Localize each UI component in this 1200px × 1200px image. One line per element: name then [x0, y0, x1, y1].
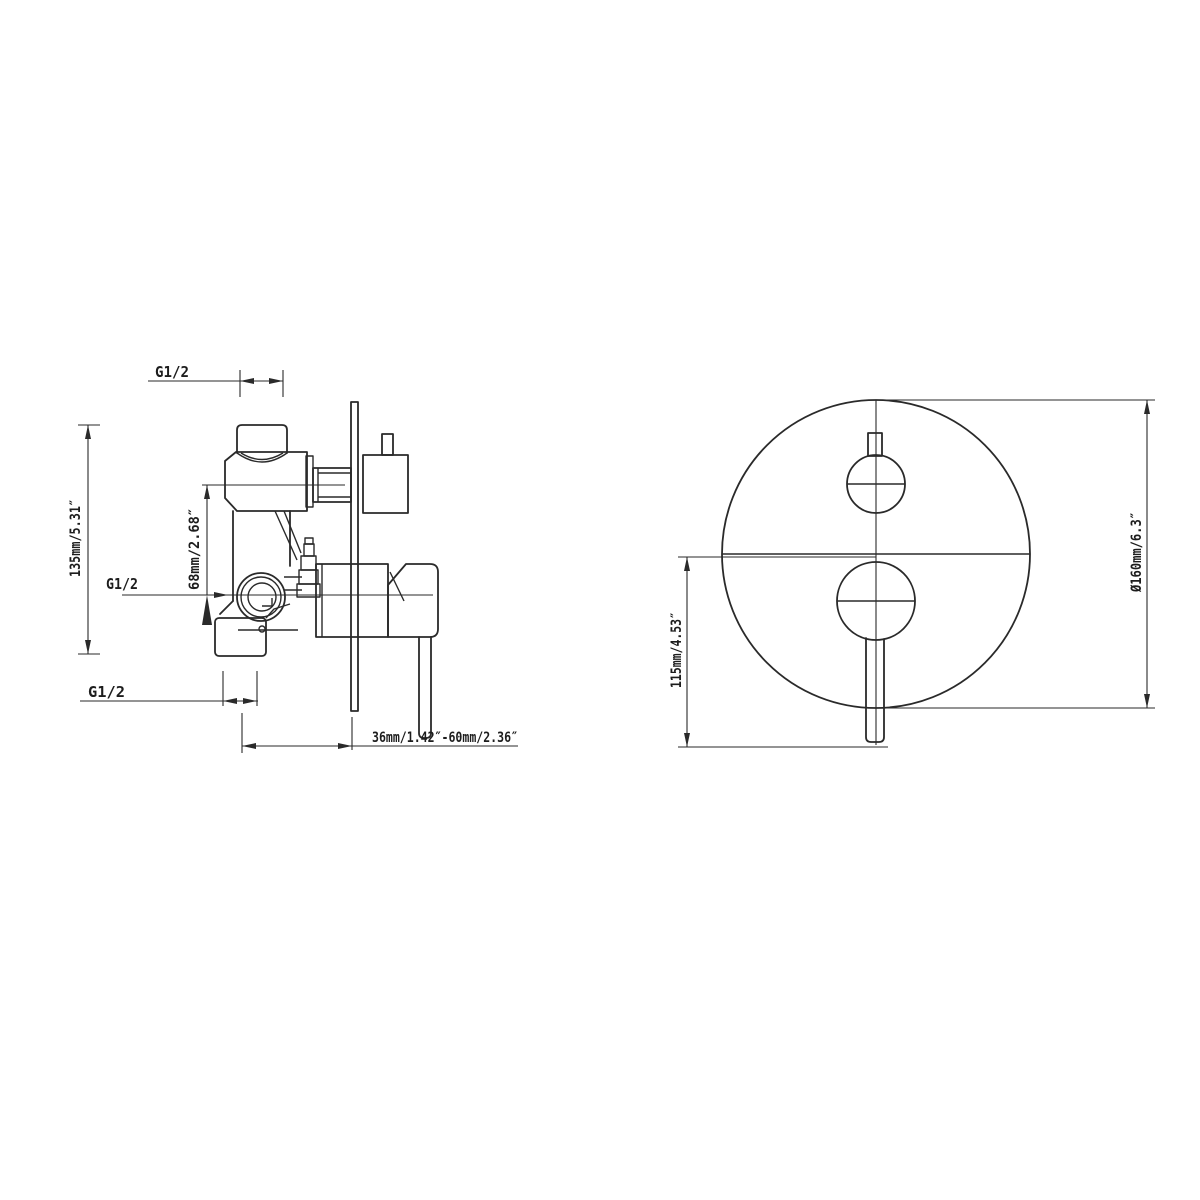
handle-side	[316, 564, 438, 637]
valve-body	[220, 452, 313, 630]
side-view: G1/2 135mm/5.31″ 68mm/2.68″ G1/2	[68, 363, 518, 753]
arrow-right-icon	[243, 698, 257, 704]
arrow-left-icon	[242, 743, 256, 749]
dim-160-text: Ø160mm/6.3″	[1129, 512, 1145, 593]
dim-port-offset: 68mm/2.68″	[187, 485, 212, 625]
wall-plate-side	[351, 402, 358, 711]
arrow-down-icon	[1144, 694, 1150, 708]
arrow-down-icon	[85, 640, 91, 654]
g12-middle-text: G1/2	[106, 575, 138, 593]
dim-68-text: 68mm/2.68″	[187, 508, 203, 590]
handle-lever-front	[866, 638, 884, 742]
label-g12-top: G1/2	[148, 363, 283, 397]
g12-top-text: G1/2	[155, 363, 189, 381]
arrow-right-icon	[269, 378, 283, 384]
screw-dot	[259, 626, 265, 632]
dim-body-height: 135mm/5.31″	[68, 425, 100, 654]
handle-lever-side	[419, 637, 431, 738]
arrow-up-icon	[204, 485, 210, 499]
technical-drawing: G1/2 135mm/5.31″ 68mm/2.68″ G1/2	[0, 0, 1200, 1200]
dim-135-text: 135mm/5.31″	[68, 499, 84, 577]
arrow-left-icon	[240, 378, 254, 384]
arrow-up-icon	[1144, 400, 1150, 414]
arrow-solid-up-icon	[202, 595, 212, 625]
outlet-port-bottom	[215, 618, 266, 656]
front-view: Ø160mm/6.3″ 115mm/4.53″	[669, 400, 1155, 747]
arrow-left-icon	[223, 698, 237, 704]
arrow-up-icon	[684, 557, 690, 571]
knob-stem-front	[868, 433, 882, 456]
dim-115-text: 115mm/4.53″	[669, 612, 685, 688]
label-g12-bottom: G1/2	[80, 671, 258, 706]
arrow-right-icon	[214, 592, 228, 598]
arrow-up-icon	[85, 425, 91, 439]
g12-bottom-text: G1/2	[88, 683, 125, 701]
temperature-knob-side	[363, 434, 408, 513]
arrow-down-icon	[684, 733, 690, 747]
dim-handle-drop: 115mm/4.53″	[669, 557, 888, 747]
dim-install-depth: 36mm/1.42″-60mm/2.36″	[242, 713, 518, 753]
arrow-right-icon	[338, 743, 352, 749]
cartridge-circle	[237, 573, 285, 632]
dim-depth-text: 36mm/1.42″-60mm/2.36″	[372, 730, 518, 746]
drawing-canvas: G1/2 135mm/5.31″ 68mm/2.68″ G1/2	[0, 0, 1200, 1200]
inlet-pipe-top	[237, 425, 287, 462]
